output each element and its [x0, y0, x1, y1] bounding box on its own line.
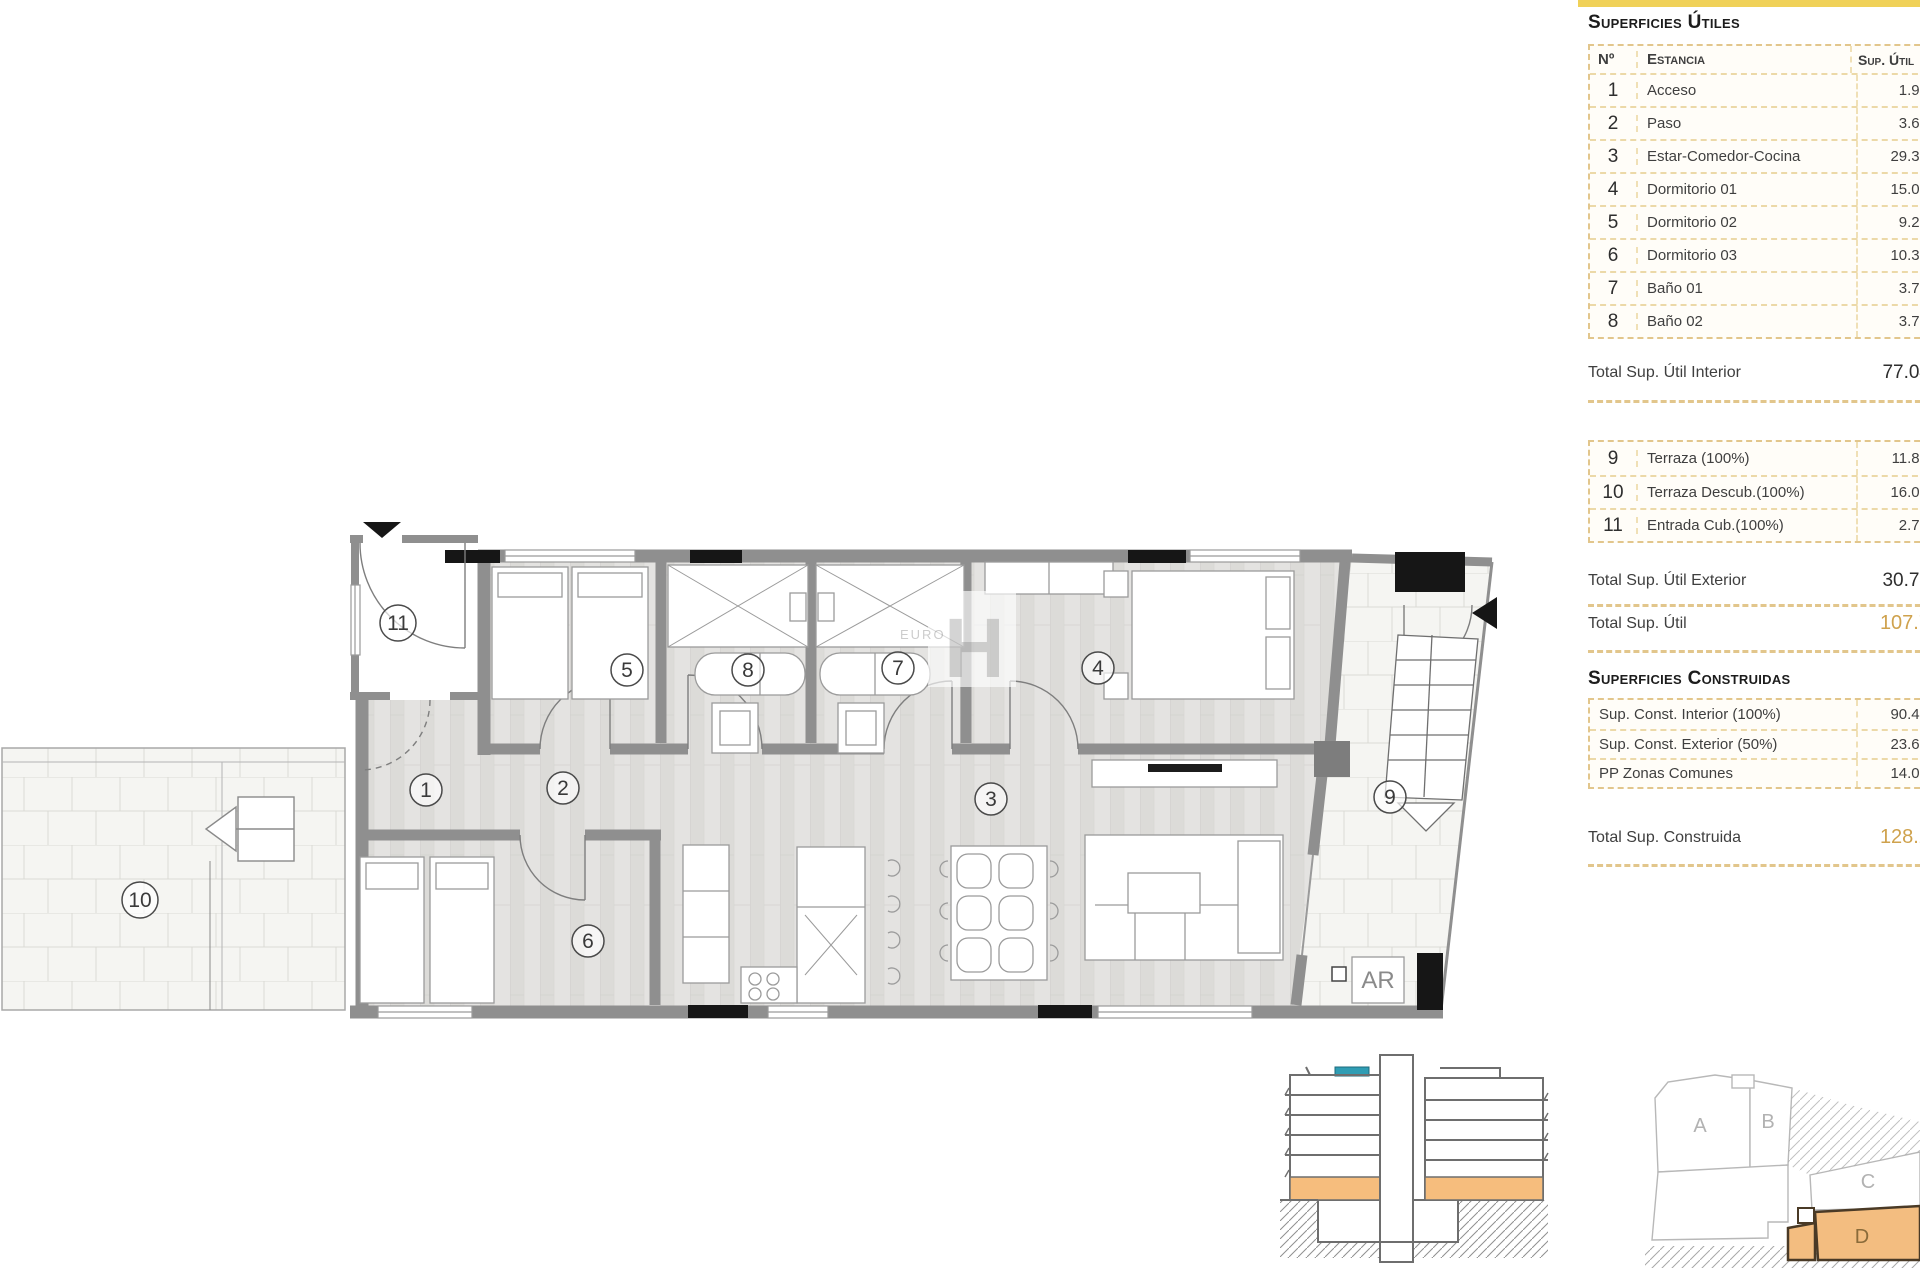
surfaces-construidas-table: Sup. Const. Interior (100%) 90.48 Sup. C… [1588, 698, 1920, 789]
room-label-6: 6 [582, 930, 594, 953]
core-shaft [1380, 1055, 1413, 1262]
watermark-small: EURO [900, 627, 946, 642]
table-row: 2 Paso 3.67 [1590, 106, 1920, 139]
floor-plan: AR EURO H 1 2 3 4 5 6 7 8 9 10 11 [0, 505, 1520, 1035]
row-value: 11.88 [1856, 442, 1920, 475]
room-label-5: 5 [621, 659, 633, 682]
row-name: PP Zonas Comunes [1590, 765, 1856, 782]
table-row: 5 Dormitorio 02 9.29 [1590, 205, 1920, 238]
row-value: 14.05 [1856, 760, 1920, 787]
table-row: 10 Terraza Descub.(100%) 16.08 [1590, 475, 1920, 508]
total-interior-row: Total Sup. Útil Interior 77.04 [1588, 362, 1920, 384]
table-row: 11 Entrada Cub.(100%) 2.76 [1590, 508, 1920, 541]
total-exterior-row: Total Sup. Útil Exterior 30.72 [1588, 570, 1920, 592]
divider [1588, 650, 1920, 653]
table-row: 8 Baño 02 3.71 [1590, 304, 1920, 337]
total-util-label: Total Sup. Útil [1588, 615, 1687, 633]
site-label-c: C [1861, 1171, 1875, 1193]
table-row: 6 Dormitorio 03 10.30 [1590, 238, 1920, 271]
wall-corner-block [1314, 741, 1350, 777]
room-label-7: 7 [892, 657, 904, 680]
row-name: Acceso [1636, 82, 1856, 99]
surfaces-construidas-title: Superficies Construidas [1588, 668, 1920, 690]
table-row: 3 Estar-Comedor-Cocina 29.39 [1590, 139, 1920, 172]
row-name: Sup. Const. Interior (100%) [1590, 706, 1856, 723]
total-exterior-value: 30.72 [1882, 570, 1920, 592]
row-name: Baño 02 [1636, 313, 1856, 330]
total-util-value: 107.7 [1880, 612, 1920, 635]
row-name: Estar-Comedor-Cocina [1636, 148, 1856, 165]
row-num: 9 [1590, 448, 1636, 470]
highlight-floor-right [1425, 1177, 1543, 1200]
floorplan-sheet: { "colors": { "accent_yellow": "#f0d158"… [0, 0, 1920, 1280]
terrace-10-floor [2, 748, 345, 1010]
col-header-sup: Sup. Útil [1850, 46, 1920, 73]
total-util-row: Total Sup. Útil 107.7 [1588, 612, 1920, 635]
row-num: 11 [1590, 515, 1636, 537]
row-value: 10.30 [1856, 240, 1920, 271]
row-value: 9.29 [1856, 207, 1920, 238]
row-name: Baño 01 [1636, 280, 1856, 297]
row-name: Sup. Const. Exterior (50%) [1590, 736, 1856, 753]
row-value: 2.76 [1856, 510, 1920, 541]
row-num: 4 [1590, 179, 1636, 201]
row-value: 29.39 [1856, 141, 1920, 172]
row-value: 1.94 [1856, 75, 1920, 106]
table-row: 7 Baño 01 3.71 [1590, 271, 1920, 304]
row-num: 10 [1590, 482, 1636, 504]
total-construida-value: 128.2 [1880, 826, 1920, 849]
divider [1588, 400, 1920, 403]
room-label-9: 9 [1384, 786, 1396, 809]
total-construida-row: Total Sup. Construida 128.2 [1588, 826, 1920, 849]
highlight-floor-left [1290, 1177, 1380, 1200]
room-label-2: 2 [557, 777, 569, 800]
row-value: 3.71 [1856, 306, 1920, 337]
table-row: Sup. Const. Interior (100%) 90.48 [1590, 700, 1920, 729]
total-interior-label: Total Sup. Útil Interior [1588, 364, 1741, 382]
row-num: 6 [1590, 245, 1636, 267]
surfaces-exterior-table: 9 Terraza (100%) 11.88 10 Terraza Descub… [1588, 440, 1920, 543]
building-section-diagram [1280, 1050, 1550, 1275]
dining-set [940, 846, 1058, 980]
coffee-table [1128, 873, 1200, 913]
table-row: 4 Dormitorio 01 15.03 [1590, 172, 1920, 205]
room-label-4: 4 [1092, 657, 1104, 680]
row-name: Dormitorio 03 [1636, 247, 1856, 264]
row-num: 3 [1590, 146, 1636, 168]
ar-label: AR [1361, 967, 1394, 994]
total-interior-value: 77.04 [1882, 362, 1920, 384]
divider [1588, 604, 1920, 607]
table-row: 1 Acceso 1.94 [1590, 73, 1920, 106]
row-value: 16.08 [1856, 477, 1920, 508]
row-value: 90.48 [1856, 700, 1920, 729]
table-header-row: Nº Estancia Sup. Útil [1590, 46, 1920, 73]
row-name: Entrada Cub.(100%) [1636, 517, 1856, 534]
row-num: 1 [1590, 80, 1636, 102]
total-exterior-label: Total Sup. Útil Exterior [1588, 572, 1746, 590]
row-name: Dormitorio 01 [1636, 181, 1856, 198]
row-name: Terraza (100%) [1636, 450, 1856, 467]
row-value: 15.03 [1856, 174, 1920, 205]
row-num: 2 [1590, 113, 1636, 135]
room-label-8: 8 [742, 659, 754, 682]
row-num: 7 [1590, 278, 1636, 300]
table-row: PP Zonas Comunes 14.05 [1590, 758, 1920, 787]
table-row: Sup. Const. Exterior (50%) 23.68 [1590, 729, 1920, 758]
row-value: 3.71 [1856, 273, 1920, 304]
col-header-num: Nº [1590, 51, 1636, 68]
room-label-11: 11 [387, 612, 409, 635]
row-num: 5 [1590, 212, 1636, 234]
row-name: Paso [1636, 115, 1856, 132]
row-value: 3.67 [1856, 108, 1920, 139]
watermark-big: H [944, 601, 1005, 695]
room-label-1: 1 [420, 779, 432, 802]
row-num: 8 [1590, 311, 1636, 333]
table-row: 9 Terraza (100%) 11.88 [1590, 442, 1920, 475]
col-header-room: Estancia [1636, 51, 1850, 68]
tv-icon [1148, 764, 1222, 772]
row-name: Dormitorio 02 [1636, 214, 1856, 231]
total-construida-label: Total Sup. Construida [1588, 829, 1741, 847]
row-value: 23.68 [1856, 731, 1920, 758]
room-label-3: 3 [985, 788, 997, 811]
surfaces-utiles-table: Nº Estancia Sup. Útil 1 Acceso 1.94 2 Pa… [1588, 44, 1920, 339]
site-label-a: A [1693, 1115, 1707, 1137]
divider [1588, 864, 1920, 867]
site-label-d: D [1855, 1226, 1869, 1248]
site-label-b: B [1761, 1111, 1774, 1133]
site-plan: A B C D [1640, 1050, 1920, 1280]
room-label-10: 10 [128, 889, 151, 912]
row-name: Terraza Descub.(100%) [1636, 484, 1856, 501]
surfaces-utiles-title: Superficies Útiles [1588, 12, 1920, 34]
accent-top-bar [1578, 0, 1920, 7]
